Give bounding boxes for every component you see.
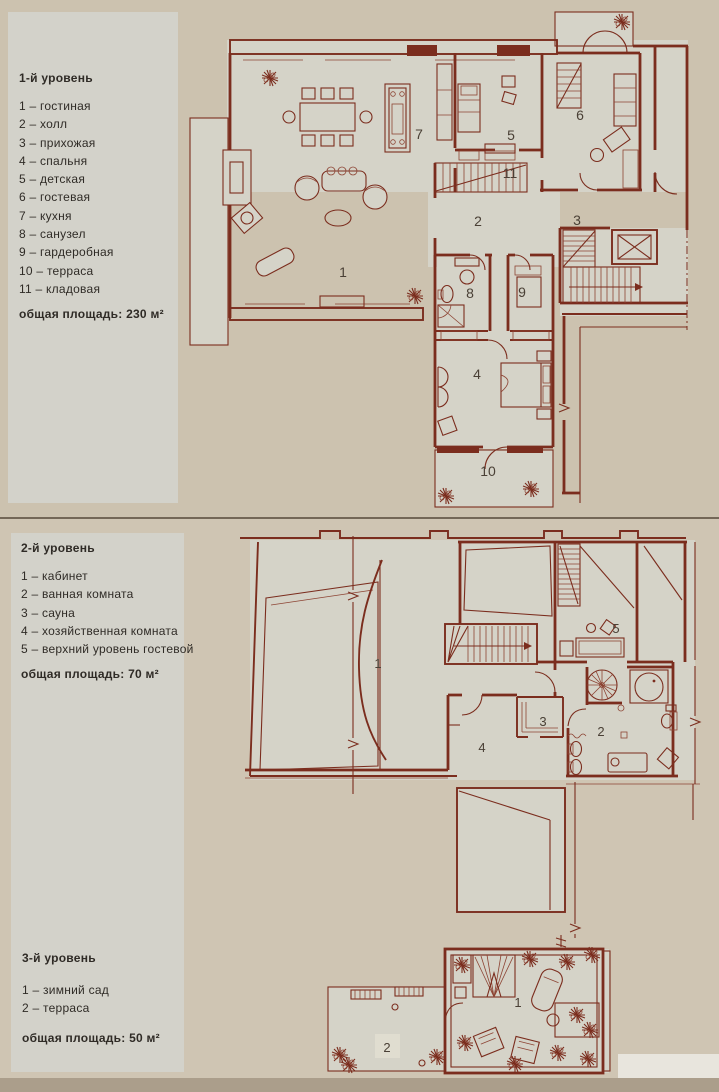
room-number: 6 bbox=[576, 107, 584, 123]
room-number: 5 bbox=[612, 621, 619, 636]
legend-level2-items: 1 – кабинет2 – ванная комната3 – сауна4 … bbox=[21, 567, 194, 658]
legend-item: 2 – холл bbox=[19, 115, 164, 133]
room-number: 2 bbox=[474, 213, 482, 229]
room-number: 4 bbox=[473, 366, 481, 382]
legend-item: 5 – детская bbox=[19, 170, 164, 188]
room-number: 9 bbox=[518, 284, 526, 300]
room-number: 10 bbox=[480, 463, 496, 479]
level2-parapet bbox=[240, 531, 686, 538]
legend-level3-title: 3-й уровень bbox=[22, 951, 160, 965]
legend-item: 4 – хозяйственная комната bbox=[21, 622, 194, 640]
floor-plan-level3: 12 bbox=[315, 935, 615, 1090]
room-number: 1 bbox=[374, 656, 381, 671]
room-number: 11 bbox=[503, 165, 518, 181]
legend-item: 1 – гостиная bbox=[19, 97, 164, 115]
legend-item: 11 – кладовая bbox=[19, 280, 164, 298]
legend-item: 3 – прихожая bbox=[19, 134, 164, 152]
page-edge-highlight bbox=[618, 1054, 719, 1078]
level1-fireplace bbox=[223, 150, 251, 205]
floor-plan-level3-drawing: 12 bbox=[315, 935, 615, 1085]
level2-room-fills bbox=[250, 540, 695, 912]
room-number: 1 bbox=[339, 264, 347, 280]
room-number: 1 bbox=[514, 995, 521, 1010]
legend-item: 8 – санузел bbox=[19, 225, 164, 243]
room-number: 3 bbox=[573, 212, 581, 228]
room-number: 7 bbox=[415, 126, 423, 142]
legend-level1-title: 1-й уровень bbox=[19, 71, 164, 85]
legend-level3-total: общая площадь: 50 м² bbox=[22, 1031, 160, 1045]
floor-plan-level1: 1756112389410 bbox=[185, 0, 719, 522]
legend-level2-title: 2-й уровень bbox=[21, 541, 194, 555]
room-number: 2 bbox=[597, 724, 604, 739]
legend-item: 2 – ванная комната bbox=[21, 585, 194, 603]
legend-item: 4 – спальня bbox=[19, 152, 164, 170]
legend-level3: 3-й уровень 1 – зимний сад2 – терраса об… bbox=[22, 951, 160, 1045]
legend-item: 1 – зимний сад bbox=[22, 981, 160, 999]
legend-item: 7 – кухня bbox=[19, 207, 164, 225]
legend-item: 6 – гостевая bbox=[19, 188, 164, 206]
room-number: 4 bbox=[478, 740, 485, 755]
room-number: 2 bbox=[383, 1040, 390, 1055]
legend-item: 2 – терраса bbox=[22, 999, 160, 1017]
scanned-floorplan-page: { "page": { "bg": "#ccc2af", "bg_lower":… bbox=[0, 0, 719, 1092]
floor-plan-level2: 15324 bbox=[230, 520, 719, 945]
legend-level2-total: общая площадь: 70 м² bbox=[21, 667, 194, 681]
level1-kitchen-island bbox=[385, 84, 410, 152]
room-number: 5 bbox=[507, 127, 515, 143]
floor-plan-level1-drawing: 1756112389410 bbox=[185, 0, 719, 517]
legend-level1: 1-й уровень 1 – гостиная2 – холл3 – прих… bbox=[19, 71, 164, 321]
legend-item: 10 – терраса bbox=[19, 262, 164, 280]
floor-plan-level2-drawing: 15324 bbox=[230, 520, 719, 940]
level3-section-tick bbox=[556, 935, 566, 947]
legend-item: 5 – верхний уровень гостевой bbox=[21, 640, 194, 658]
legend-level1-items: 1 – гостиная2 – холл3 – прихожая4 – спал… bbox=[19, 97, 164, 298]
legend-level2: 2-й уровень 1 – кабинет2 – ванная комнат… bbox=[21, 541, 194, 681]
page-bottom-edge bbox=[0, 1078, 719, 1092]
legend-item: 3 – сауна bbox=[21, 604, 194, 622]
legend-level3-items: 1 – зимний сад2 – терраса bbox=[22, 981, 160, 1018]
legend-item: 9 – гардеробная bbox=[19, 243, 164, 261]
room-number: 8 bbox=[466, 285, 474, 301]
legend-level1-total: общая площадь: 230 м² bbox=[19, 307, 164, 321]
room-number: 3 bbox=[539, 714, 546, 729]
level2-spiral-stair bbox=[587, 670, 617, 700]
legend-item: 1 – кабинет bbox=[21, 567, 194, 585]
